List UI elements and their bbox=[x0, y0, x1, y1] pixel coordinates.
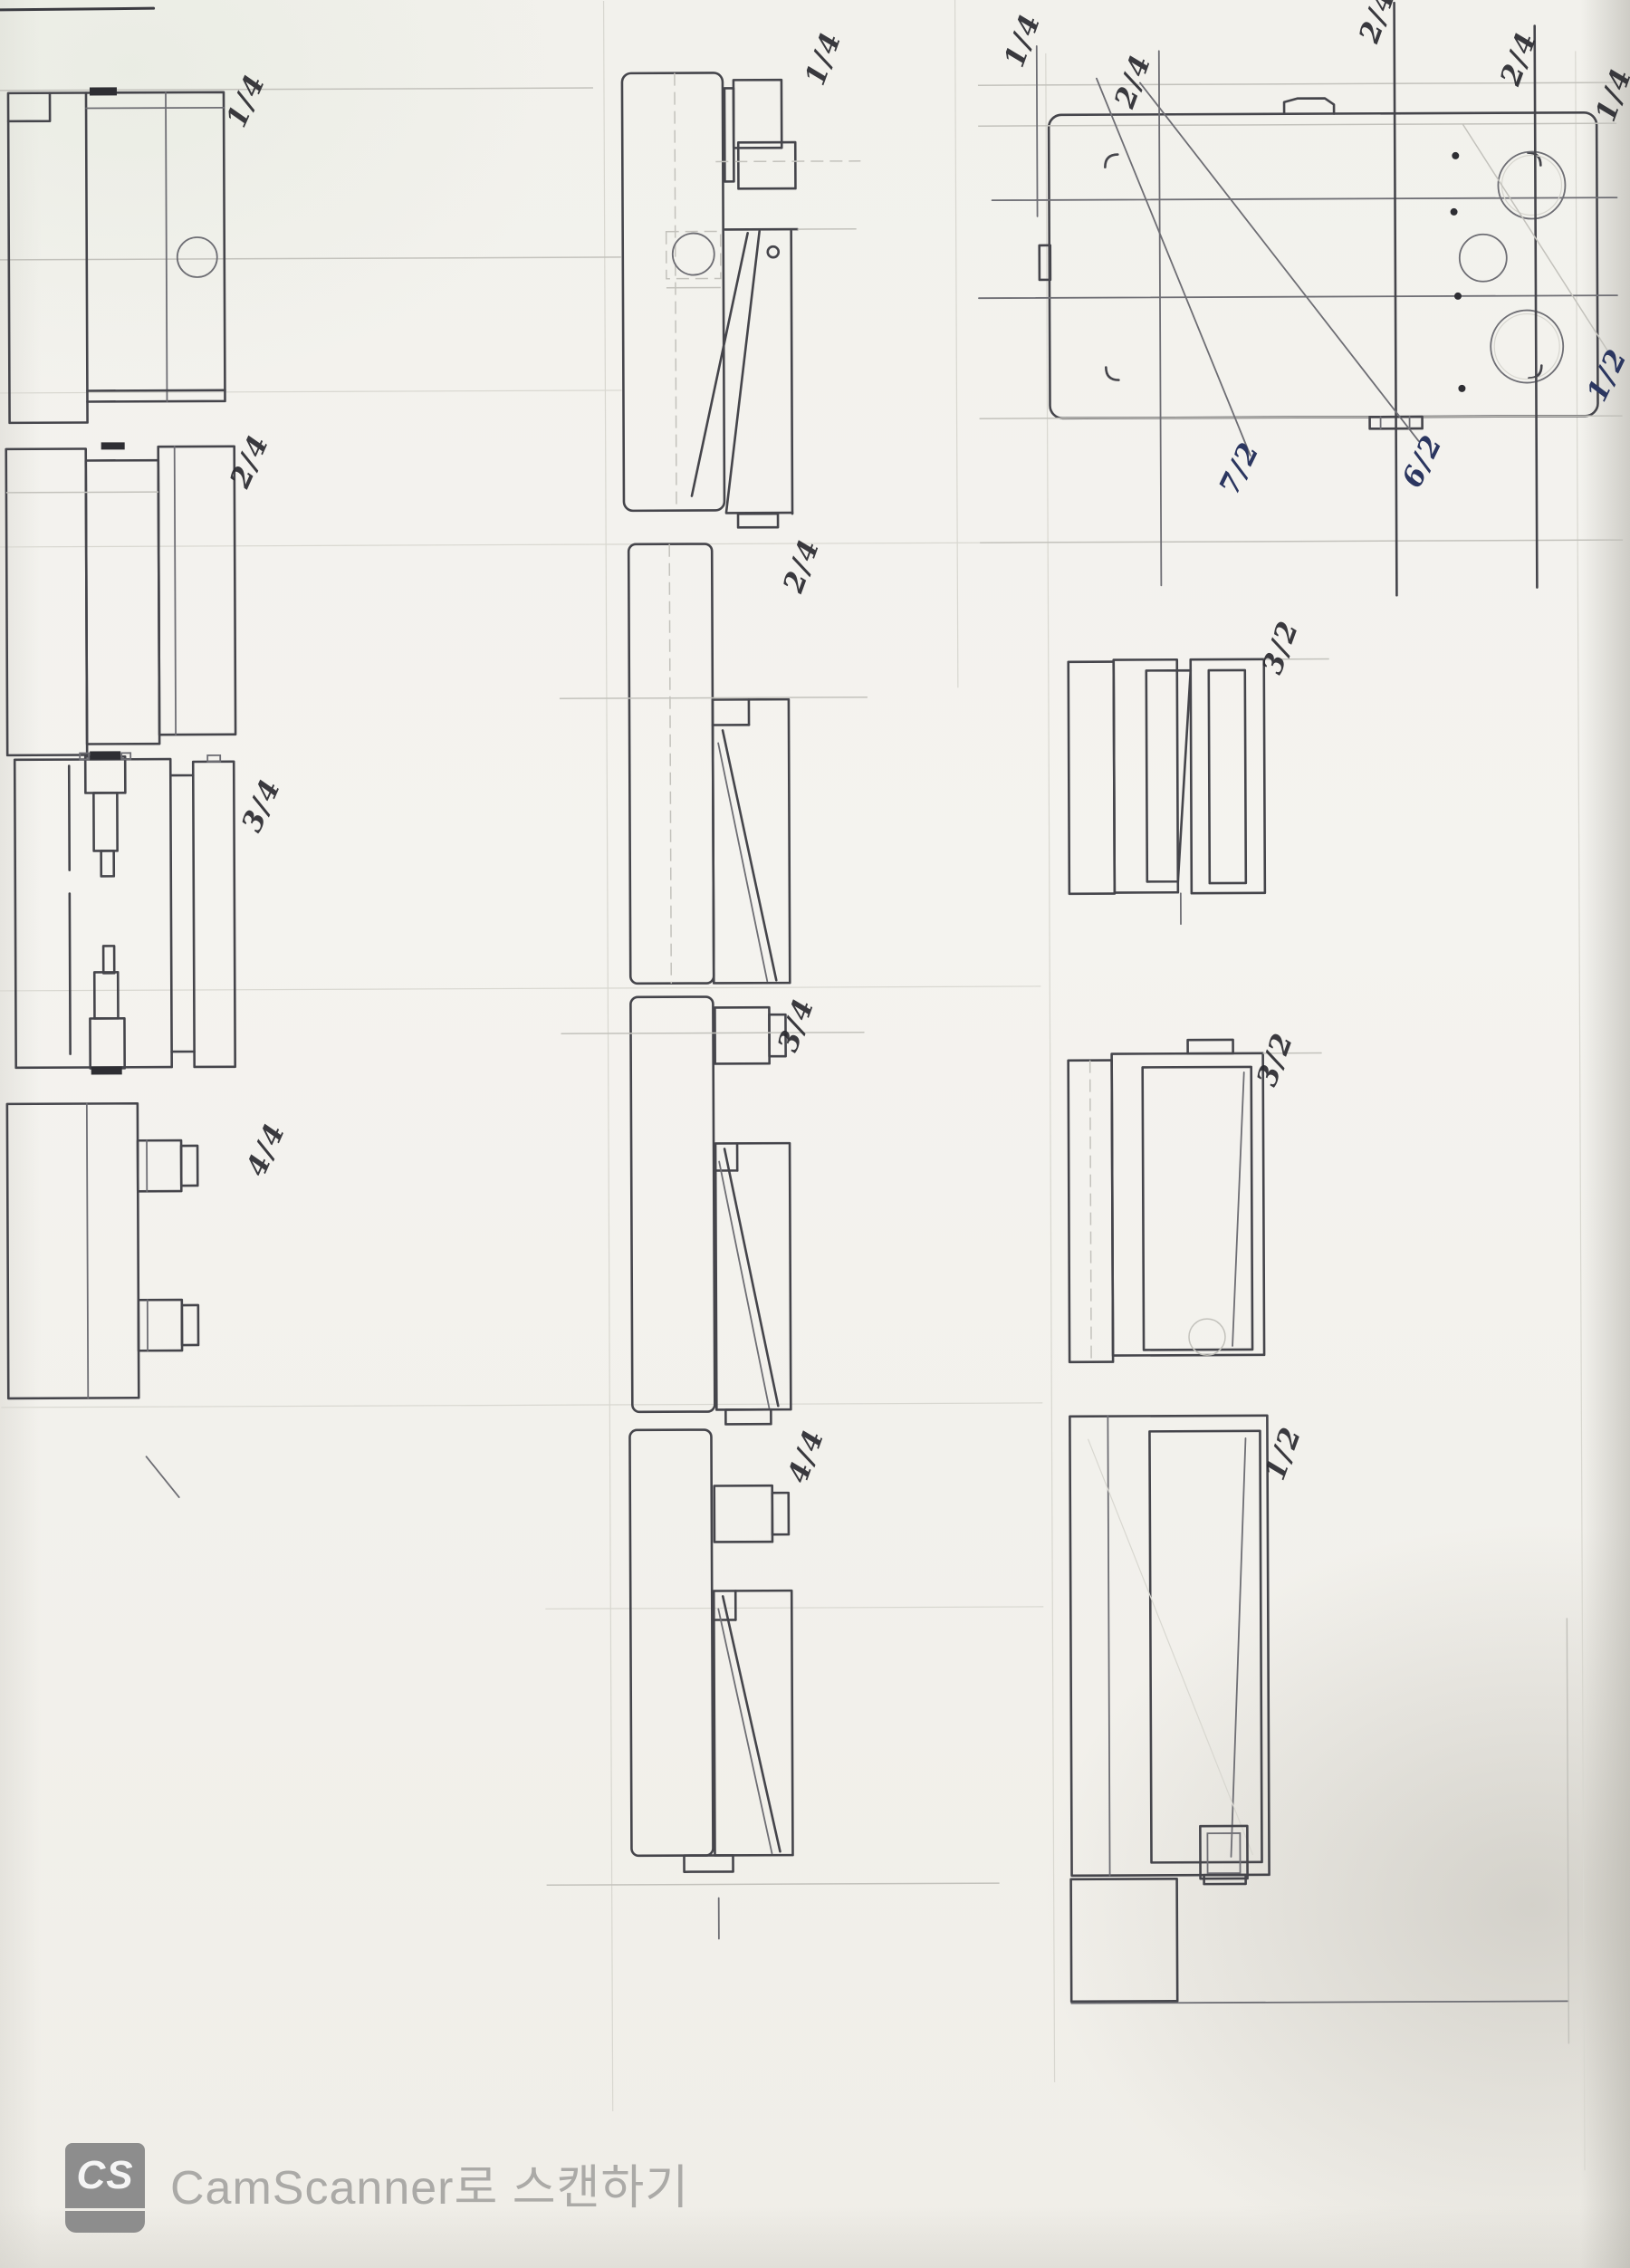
drawing-left-1 bbox=[8, 87, 225, 423]
drawing-left-4 bbox=[7, 1103, 199, 1498]
scanned-drawing-page: 1/4 2/4 3/4 4/4 1/4 2/4 3/4 4/4 1/4 2/4 … bbox=[0, 0, 1630, 2268]
drawing-right-2 bbox=[1069, 659, 1330, 925]
drawing-middle-3 bbox=[561, 996, 866, 1425]
drawing-middle-2 bbox=[559, 543, 868, 984]
camscanner-logo-bar bbox=[65, 2211, 145, 2233]
drawing-left-2 bbox=[6, 442, 236, 755]
drawing-right-3 bbox=[1069, 1040, 1324, 1362]
camscanner-logo-text: CS bbox=[76, 2153, 133, 2198]
camscanner-logo-icon: CS bbox=[65, 2143, 145, 2233]
camscanner-watermark: CS CamScanner로 스캔하기 bbox=[65, 2143, 689, 2234]
construction-lines bbox=[0, 86, 1045, 1888]
drawing-middle-4 bbox=[629, 1429, 792, 1939]
drawing-right-4 bbox=[1069, 1414, 1568, 2045]
drawing-left-3 bbox=[14, 751, 235, 1075]
drawing-right-1 bbox=[978, 2, 1624, 597]
watermark-text: CamScanner로 스캔하기 bbox=[170, 2143, 689, 2234]
drawing-middle-1 bbox=[622, 72, 862, 528]
technical-drawing-linework bbox=[0, 0, 1630, 2268]
